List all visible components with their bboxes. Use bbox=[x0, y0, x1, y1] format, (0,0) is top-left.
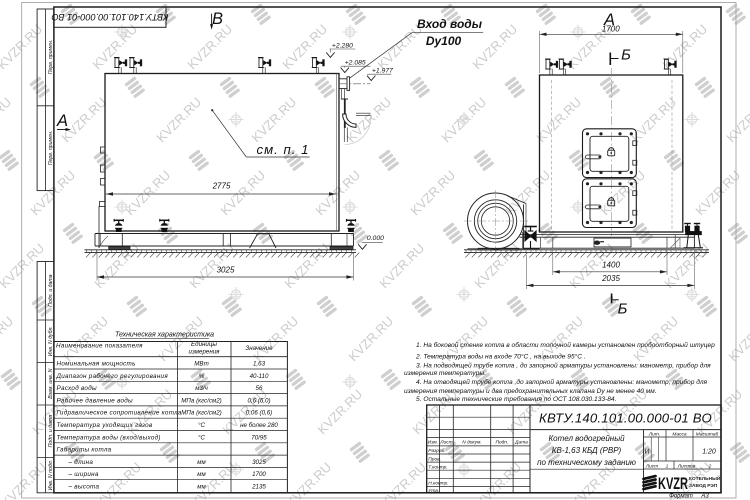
svg-text:Расход воды: Расход воды bbox=[57, 384, 97, 392]
svg-text:Т.контр.: Т.контр. bbox=[428, 464, 447, 470]
svg-text:Формат: Формат bbox=[669, 494, 693, 500]
svg-text:5. Остальные технические треб: 5. Остальные технические требования по О… bbox=[416, 395, 617, 403]
svg-text:Dy100: Dy100 bbox=[426, 34, 462, 48]
svg-text:Котел водогрейный: Котел водогрейный bbox=[548, 434, 625, 443]
svg-text:Вход воды: Вход воды bbox=[417, 17, 483, 31]
svg-text:Дата: Дата bbox=[514, 440, 528, 446]
svg-text:см. п. 1: см. п. 1 bbox=[257, 142, 310, 157]
svg-text:2775: 2775 bbox=[212, 182, 231, 191]
svg-text:Температура воды (вход/выход): Температура воды (вход/выход) bbox=[57, 433, 161, 441]
svg-text:1700: 1700 bbox=[252, 471, 266, 478]
svg-text:– длина: – длина bbox=[68, 458, 94, 466]
svg-text:%: % bbox=[199, 373, 205, 380]
svg-text:– высота: – высота bbox=[68, 484, 100, 491]
svg-text:МВт: МВт bbox=[194, 361, 208, 368]
svg-text:Изм.: Изм. bbox=[428, 440, 438, 446]
svg-text:0.000: 0.000 bbox=[367, 235, 384, 242]
svg-text:Взам. инв. N: Взам. инв. N bbox=[48, 368, 54, 398]
svg-text:Перв. примен.: Перв. примен. bbox=[48, 40, 54, 74]
svg-text:КВТУ.140.101.00.000-01 ВО: КВТУ.140.101.00.000-01 ВО bbox=[539, 411, 712, 426]
svg-text:Инв. N дубл.: Инв. N дубл. bbox=[48, 326, 54, 356]
svg-text:+2.085: +2.085 bbox=[345, 59, 366, 66]
svg-text:мм: мм bbox=[197, 471, 206, 478]
svg-text:1400: 1400 bbox=[602, 261, 620, 270]
svg-text:А: А bbox=[56, 112, 68, 130]
svg-text:Подп. и дата: Подп. и дата bbox=[48, 415, 54, 448]
svg-text:Масштаб: Масштаб bbox=[696, 431, 719, 437]
svg-text:1: 1 bbox=[666, 463, 669, 469]
svg-text:Пров.: Пров. bbox=[428, 456, 441, 462]
svg-text:Техническая характеристика: Техническая характеристика bbox=[115, 332, 214, 339]
svg-text:3. На подводящей трубе котла: 3. На подводящей трубе котла , до запорн… bbox=[416, 362, 711, 370]
svg-text:Листов: Листов bbox=[677, 463, 696, 469]
svg-text:МПа (кгс/см2): МПа (кгс/см2) bbox=[181, 410, 221, 417]
svg-text:3025: 3025 bbox=[252, 459, 266, 466]
svg-text:Инв. N подл.: Инв. N подл. bbox=[48, 460, 54, 490]
svg-text:Б: Б bbox=[618, 301, 628, 318]
svg-text:Единицы: Единицы bbox=[191, 341, 217, 348]
svg-text:°С: °С bbox=[198, 434, 205, 441]
svg-text:4. На отводящей трубе котла ,: 4. На отводящей трубе котла ,до запорной… bbox=[416, 378, 708, 386]
svg-text:Лист: Лист bbox=[645, 463, 658, 469]
svg-text:Габариты котла: Габариты котла bbox=[57, 446, 112, 454]
svg-text:0,06 (0,6): 0,06 (0,6) bbox=[246, 410, 272, 417]
svg-text:2135: 2135 bbox=[251, 484, 266, 491]
svg-text:2. Температура воды на входе: 2. Температура воды на входе 70°С , на в… bbox=[415, 353, 586, 361]
svg-text:Н.контр.: Н.контр. bbox=[428, 481, 448, 487]
svg-text:Утв.: Утв. bbox=[428, 488, 439, 494]
svg-text:Перв. примен.: Перв. примен. bbox=[48, 131, 54, 165]
svg-text:56: 56 bbox=[256, 385, 263, 392]
svg-text:Лист: Лист bbox=[439, 440, 452, 446]
svg-text:Диапазон рабочего регулировани: Диапазон рабочего регулирования bbox=[56, 372, 169, 380]
svg-text:МПа (кгс/см2): МПа (кгс/см2) bbox=[181, 397, 221, 404]
svg-text:мм: мм bbox=[197, 459, 206, 466]
svg-text:измерения температуры и два пр: измерения температуры и два предохраните… bbox=[404, 387, 657, 395]
svg-text:ЗАВОД РЭП: ЗАВОД РЭП bbox=[689, 483, 718, 489]
svg-text:Гидравлическое сопротивление к: Гидравлическое сопротивление котла bbox=[57, 409, 182, 417]
svg-text:Рабочее давление воды: Рабочее давление воды bbox=[57, 396, 134, 404]
svg-text:Температура уходящих газов: Температура уходящих газов bbox=[57, 421, 153, 429]
svg-text:мм: мм bbox=[197, 484, 206, 491]
svg-text:°С: °С bbox=[198, 422, 205, 429]
svg-text:по техническому заданию: по техническому заданию bbox=[537, 458, 636, 467]
svg-text:+2.280: +2.280 bbox=[332, 42, 353, 49]
svg-text:измерения: измерения bbox=[189, 348, 221, 355]
svg-text:КВТУ.140.101.00.000-01 ВО: КВТУ.140.101.00.000-01 ВО bbox=[51, 12, 168, 22]
svg-text:Б: Б bbox=[621, 47, 631, 64]
svg-text:70/95: 70/95 bbox=[251, 434, 267, 441]
svg-text:2: 2 bbox=[708, 463, 712, 469]
svg-text:– ширина: – ширина bbox=[68, 471, 99, 478]
svg-text:2035: 2035 bbox=[601, 274, 620, 283]
svg-text:N докум.: N докум. bbox=[462, 440, 481, 446]
svg-text:1:20: 1:20 bbox=[702, 449, 716, 456]
svg-text:Значение: Значение bbox=[245, 345, 273, 352]
svg-text:1. На боковой стенке котла в: 1. На боковой стенке котла в области топ… bbox=[416, 341, 715, 349]
svg-text:КВ-1,63 КБД (РВР): КВ-1,63 КБД (РВР) bbox=[552, 446, 622, 455]
svg-text:Наименование показателя: Наименование показателя bbox=[56, 343, 143, 350]
svg-text:0,6 (6,0): 0,6 (6,0) bbox=[247, 397, 270, 404]
svg-text:А3: А3 bbox=[700, 494, 709, 500]
svg-text:+1.977: +1.977 bbox=[372, 67, 393, 74]
svg-text:А: А bbox=[603, 11, 615, 29]
svg-text:KVZR: KVZR bbox=[658, 475, 688, 493]
svg-text:м3/ч: м3/ч bbox=[195, 385, 208, 392]
svg-text:Масса: Масса bbox=[672, 431, 687, 437]
svg-text:40-110: 40-110 bbox=[250, 373, 269, 380]
svg-text:не более 280: не более 280 bbox=[240, 422, 278, 429]
svg-text:Разраб.: Разраб. bbox=[428, 448, 445, 454]
svg-text:3025: 3025 bbox=[217, 266, 235, 275]
svg-text:1,63: 1,63 bbox=[253, 361, 266, 368]
svg-text:Подп.: Подп. bbox=[496, 440, 509, 446]
svg-text:Подп. и дата: Подп. и дата bbox=[48, 274, 54, 307]
svg-text:В: В bbox=[212, 10, 223, 28]
svg-text:Номинальная мощность: Номинальная мощность bbox=[57, 361, 136, 368]
svg-text:измерения температуры.: измерения температуры. bbox=[404, 370, 486, 377]
svg-text:Лит.: Лит. bbox=[648, 431, 660, 437]
